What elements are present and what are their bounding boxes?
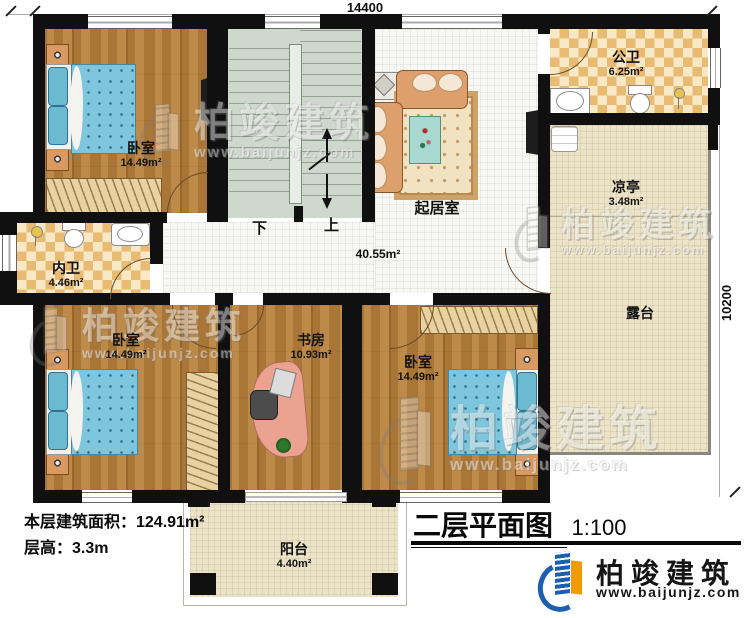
room-name: 露台 — [626, 306, 654, 322]
wall — [0, 212, 167, 223]
room-label-living: 起居室 — [414, 201, 459, 218]
room-label-study: 书房 10.93m² — [291, 333, 332, 361]
nightstand — [46, 349, 69, 371]
nightstand — [515, 452, 539, 476]
floor-plan: 14400 10200 — [0, 0, 750, 614]
sofa-cushion — [438, 73, 463, 92]
room-area: 14.49m² — [398, 371, 439, 383]
cabinet-icon — [551, 126, 578, 152]
room-name: 起居室 — [414, 201, 459, 218]
room-name: 卧室 — [398, 355, 439, 371]
balcony-wall-stub — [372, 490, 396, 507]
wall — [207, 28, 228, 222]
room-area: 4.46m² — [49, 277, 84, 289]
stair-treads — [229, 48, 290, 200]
stair-direction-line — [326, 138, 328, 162]
pavilion-terrace-divider — [550, 216, 708, 217]
bed-pillow — [48, 67, 68, 106]
stair-up-label: 上 — [324, 214, 339, 235]
top-dimension-label: 14400 — [330, 0, 400, 15]
plant-icon — [276, 438, 291, 453]
wall — [362, 28, 375, 222]
wall — [150, 212, 163, 264]
coffee-table — [409, 116, 441, 164]
bed-pillow — [517, 411, 537, 450]
wall — [708, 125, 718, 150]
toilet-bowl — [64, 229, 84, 248]
balcony-wall-stub — [188, 490, 210, 507]
bed-pillow — [48, 411, 68, 450]
room-label-bedroom-br: 卧室 14.49m² — [398, 355, 439, 383]
balcony-sliding-door — [245, 492, 347, 502]
wall — [0, 212, 17, 235]
wall — [218, 293, 230, 503]
office-chair — [250, 390, 278, 420]
title-text: 二层平面图 — [413, 504, 553, 544]
wardrobe — [186, 372, 220, 492]
wall — [502, 14, 712, 29]
window — [88, 16, 172, 29]
room-area: 14.49m² — [121, 157, 162, 169]
window — [400, 492, 502, 503]
nightstand — [46, 44, 69, 66]
room-area: 10.93m² — [291, 349, 332, 361]
stair-direction-line — [326, 174, 328, 198]
window — [710, 48, 721, 88]
logo-building-orange — [571, 560, 582, 594]
room-label-public-bath: 公卫 6.25m² — [609, 50, 644, 78]
floor-height-text: 层高：3.3m — [24, 534, 108, 558]
room-label-pavilion: 凉亭 3.48m² — [609, 180, 644, 208]
wardrobe — [46, 178, 162, 213]
window — [82, 492, 132, 503]
room-name: 公卫 — [609, 50, 644, 66]
window — [265, 16, 320, 29]
room-area: 14.49m² — [106, 349, 147, 361]
bed-pillow — [48, 106, 68, 145]
sink-icon — [556, 91, 584, 111]
room-area: 40.55m² — [356, 248, 401, 261]
stair-newel — [294, 206, 303, 222]
room-name: 书房 — [291, 333, 332, 349]
nightstand — [515, 348, 539, 371]
room-name: 凉亭 — [609, 180, 644, 196]
stair-down-label: 下 — [252, 217, 267, 238]
wall — [33, 14, 45, 213]
stair-up-arrow — [322, 128, 332, 139]
wall — [342, 293, 362, 503]
brand-logo-icon — [540, 550, 590, 604]
room-area-living: 40.55m² — [356, 248, 401, 261]
room-area: 4.40m² — [277, 558, 312, 570]
sofa-cushion — [412, 73, 437, 92]
room-name: 内卫 — [49, 261, 84, 277]
room-label-inner-bath: 内卫 4.46m² — [49, 261, 84, 289]
wall — [172, 14, 265, 29]
bed-pillow — [48, 372, 68, 411]
window — [402, 16, 502, 29]
window — [2, 235, 17, 271]
stair-down-arrow — [322, 198, 332, 209]
wall — [548, 113, 712, 125]
wall — [433, 293, 550, 305]
floor-area-text: 本层建筑面积：124.91m² — [24, 508, 205, 532]
wall — [538, 74, 550, 248]
room-name: 阳台 — [277, 542, 312, 558]
stair-railing — [289, 44, 302, 204]
room-name: 卧室 — [121, 141, 162, 157]
wall — [502, 490, 550, 503]
logo-building-blue — [555, 551, 570, 595]
room-label-terrace: 露台 — [626, 306, 654, 322]
sink-icon — [117, 226, 143, 242]
title-underline-thin — [411, 547, 567, 548]
wall — [538, 29, 550, 34]
room-area: 6.25m² — [609, 66, 644, 78]
wall — [708, 14, 720, 48]
title-scale: 1:100 — [571, 515, 626, 541]
room-label-balcony: 阳台 4.40m² — [277, 542, 312, 570]
wardrobe — [420, 306, 538, 334]
terrace-bottom-railing — [550, 452, 711, 455]
bed-pillow — [517, 372, 537, 411]
wall — [538, 293, 550, 503]
title-underline — [411, 541, 741, 545]
wall — [33, 293, 45, 503]
corridor-floor — [163, 222, 375, 293]
stair-treads — [300, 30, 361, 200]
shower-head — [31, 226, 43, 238]
wall — [33, 490, 82, 503]
room-label-bedroom-bl: 卧室 14.49m² — [106, 333, 147, 361]
balcony-corner-bracket — [372, 573, 398, 595]
room-label-bedroom-tl: 卧室 14.49m² — [121, 141, 162, 169]
shower-pole — [35, 236, 36, 246]
right-dimension-label: 10200 — [706, 280, 746, 326]
toilet-brush — [674, 88, 685, 99]
drawing-title: 二层平面图 1:100 — [413, 504, 627, 544]
pavilion-terrace-floor — [550, 125, 708, 452]
toilet-bowl — [630, 93, 650, 114]
wall — [320, 14, 402, 29]
brand-website: www.baijunjz.com — [596, 584, 741, 600]
toilet-brush-handle — [678, 97, 679, 109]
dimension-tick — [729, 486, 740, 497]
room-name: 卧室 — [106, 333, 147, 349]
room-area: 3.48m² — [609, 196, 644, 208]
balcony-corner-bracket — [190, 573, 216, 595]
wall — [263, 293, 390, 305]
nightstand — [46, 147, 69, 171]
